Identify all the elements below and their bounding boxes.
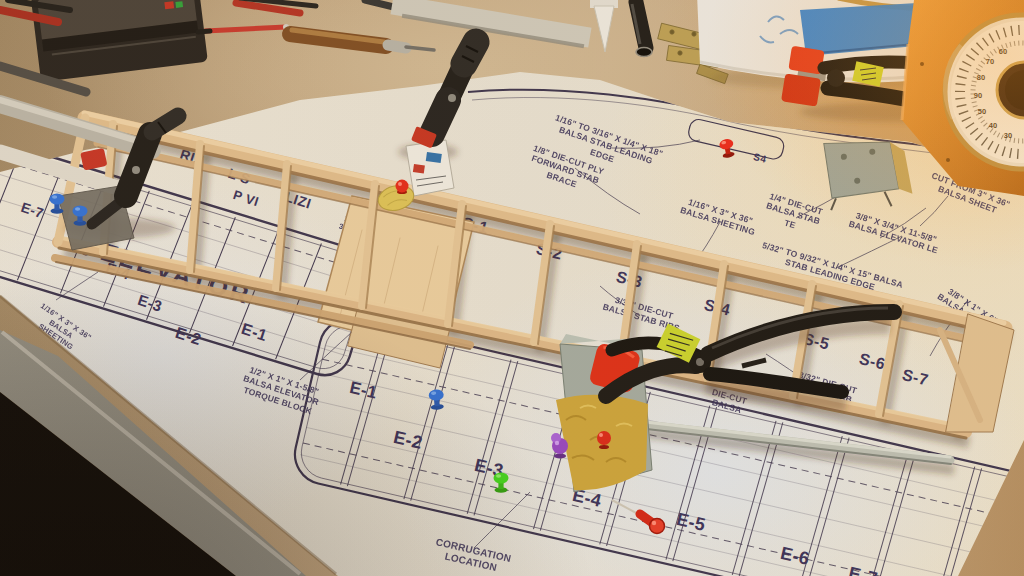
green-dot bbox=[175, 1, 183, 8]
objects-layer: 90 80 70 60 50 40 30 bbox=[0, 0, 1024, 576]
table-edge bbox=[0, 330, 306, 576]
svg-text:60: 60 bbox=[999, 47, 1007, 56]
svg-text:30: 30 bbox=[1004, 131, 1012, 140]
dial-gauge-box: 90 80 70 60 50 40 30 bbox=[902, 0, 1024, 196]
aluminum-ruler bbox=[402, 6, 582, 46]
workbench-scene: ELEVATOR RIZ L S P VI ILIZI E-7 E-5 E-4 … bbox=[0, 0, 1024, 576]
svg-text:70: 70 bbox=[986, 57, 994, 66]
svg-text:40: 40 bbox=[989, 121, 997, 130]
pushpin-blue bbox=[428, 389, 445, 411]
svg-text:90: 90 bbox=[974, 91, 982, 100]
red-dot bbox=[164, 1, 174, 9]
red-pen bbox=[198, 24, 289, 32]
wood-handle-awl bbox=[290, 30, 434, 50]
svg-text:80: 80 bbox=[977, 73, 985, 82]
pushpin-red bbox=[718, 138, 736, 159]
black-tube bbox=[632, 2, 652, 57]
metal-angle-bracket bbox=[819, 137, 916, 215]
toolbox bbox=[31, 0, 208, 82]
glue-nozzle bbox=[590, 0, 618, 52]
pushpin-red bbox=[396, 180, 409, 195]
upright-clamp bbox=[376, 42, 478, 214]
clamp-pad bbox=[781, 73, 821, 106]
pushpin-green bbox=[494, 473, 509, 493]
svg-text:50: 50 bbox=[978, 107, 986, 116]
clamp-pad bbox=[80, 148, 107, 171]
label-card bbox=[406, 140, 454, 196]
pushpin-red-lying bbox=[612, 500, 665, 534]
